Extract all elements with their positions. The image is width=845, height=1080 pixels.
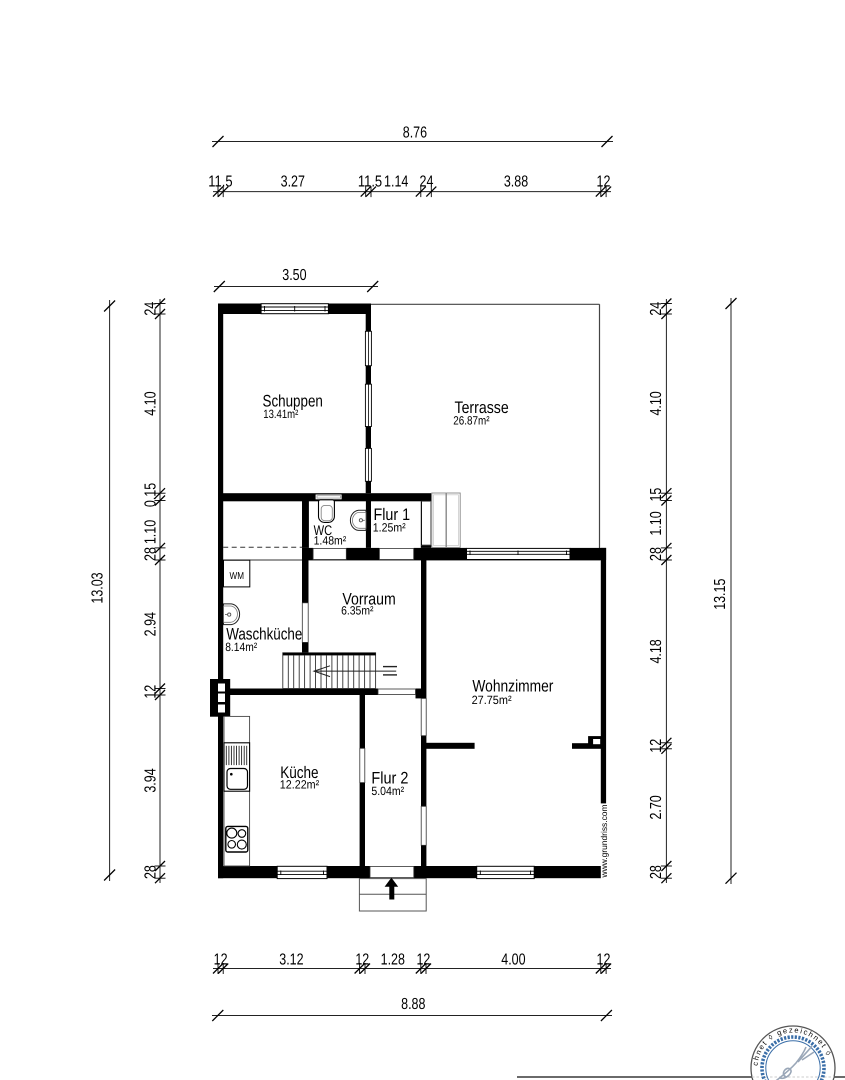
svg-text:28: 28 xyxy=(142,865,159,879)
svg-text:1.14: 1.14 xyxy=(384,173,408,190)
svg-text:24: 24 xyxy=(142,302,159,316)
svg-text:26.87m²: 26.87m² xyxy=(453,413,489,427)
svg-text:2.94: 2.94 xyxy=(142,612,159,636)
svg-text:13.41m²: 13.41m² xyxy=(263,407,298,421)
svg-text:2.70: 2.70 xyxy=(648,795,665,819)
svg-text:3.88: 3.88 xyxy=(504,173,528,190)
svg-text:1.48m²: 1.48m² xyxy=(314,534,347,548)
svg-text:3.94: 3.94 xyxy=(142,768,159,792)
svg-text:1.25m²: 1.25m² xyxy=(373,520,406,534)
svg-text:24: 24 xyxy=(648,302,665,316)
svg-text:1.10: 1.10 xyxy=(142,520,159,544)
svg-text:12: 12 xyxy=(648,739,665,753)
svg-text:WM: WM xyxy=(230,571,245,582)
svg-text:8.14m²: 8.14m² xyxy=(225,640,257,654)
svg-text:12: 12 xyxy=(597,173,611,190)
svg-text:4.18: 4.18 xyxy=(648,639,665,663)
svg-text:13.03: 13.03 xyxy=(89,572,106,603)
svg-text:8.76: 8.76 xyxy=(403,125,427,142)
svg-text:0.15: 0.15 xyxy=(142,483,159,507)
svg-text:13.15: 13.15 xyxy=(712,579,729,610)
svg-text:27.75m²: 27.75m² xyxy=(472,693,512,707)
svg-text:4.10: 4.10 xyxy=(648,391,665,415)
svg-text:8.88: 8.88 xyxy=(401,996,425,1013)
svg-text:15: 15 xyxy=(648,488,665,502)
svg-text:1.28: 1.28 xyxy=(381,951,405,968)
svg-text:12.22m²: 12.22m² xyxy=(280,778,319,792)
svg-text:1.10: 1.10 xyxy=(648,511,665,535)
svg-text:28: 28 xyxy=(648,865,665,879)
svg-text:28: 28 xyxy=(142,547,159,561)
svg-text:4.00: 4.00 xyxy=(501,951,525,968)
svg-text:4.10: 4.10 xyxy=(142,391,159,415)
svg-text:3.50: 3.50 xyxy=(282,267,306,284)
svg-text:11.5: 11.5 xyxy=(208,173,232,190)
svg-text:3.27: 3.27 xyxy=(281,173,305,190)
svg-text:5.04m²: 5.04m² xyxy=(371,784,404,798)
svg-text:12: 12 xyxy=(142,685,159,699)
svg-text:3.12: 3.12 xyxy=(279,951,303,968)
svg-text:28: 28 xyxy=(648,547,665,561)
svg-text:6.35m²: 6.35m² xyxy=(341,604,373,618)
